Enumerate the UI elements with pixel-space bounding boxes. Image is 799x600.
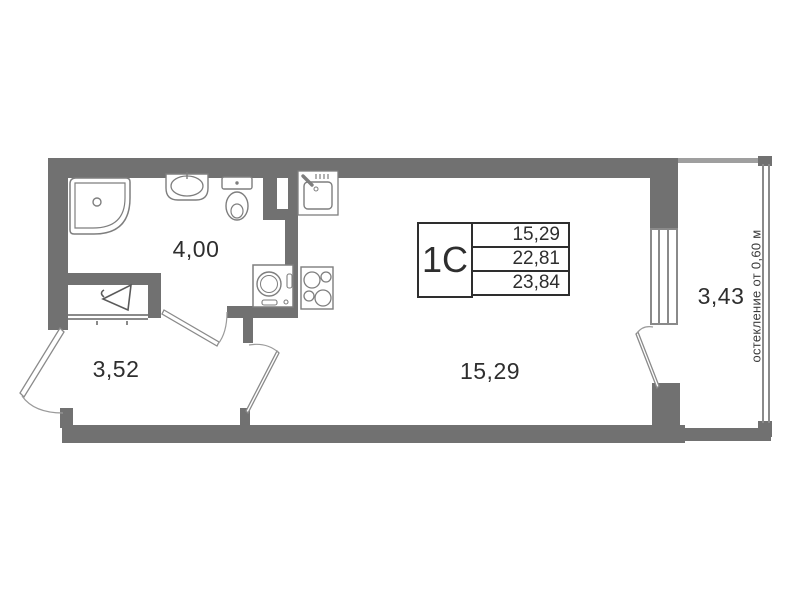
- wall-window-pier-top: [650, 178, 678, 228]
- glazing-note-label: остекление от 0,60 м: [749, 224, 765, 369]
- stove-icon: [300, 266, 334, 310]
- wardrobe-hanger-icon: [98, 282, 136, 314]
- unit-area-rows: 15,29 22,81 23,84: [471, 222, 570, 298]
- toilet-icon: [220, 175, 254, 225]
- closet-sliding-door-icon: [68, 314, 148, 320]
- kitchen-sink-icon: [297, 170, 339, 216]
- window-icon: [650, 228, 678, 325]
- wall-balcony-top-line: [678, 158, 758, 163]
- bathroom-door-icon: [158, 303, 232, 349]
- wall-balcony-corner-bottom: [758, 421, 772, 437]
- wall-left: [48, 158, 68, 330]
- unit-type-label: 1С: [417, 222, 473, 298]
- washbasin-icon: [164, 172, 210, 202]
- shower-icon: [68, 176, 134, 240]
- entrance-door-icon: [14, 324, 70, 418]
- unit-area-total: 22,81: [471, 246, 570, 272]
- unit-info-card: 1С 15,29 22,81 23,84: [417, 222, 570, 298]
- living-room-door-icon: [238, 338, 286, 416]
- unit-area-total-with-balcony: 23,84: [471, 270, 570, 296]
- wall-duct-bottom: [263, 209, 298, 220]
- washing-machine-icon: [252, 264, 294, 308]
- hallway-area-label: 3,52: [76, 356, 156, 383]
- floor-plan-canvas: 4,00 3,52 15,29 3,43 остекление от 0,60 …: [0, 0, 799, 600]
- wall-top: [48, 158, 678, 178]
- balcony-door-icon: [628, 318, 666, 392]
- unit-area-living: 15,29: [471, 222, 570, 248]
- living-area-label: 15,29: [440, 358, 540, 385]
- wall-bottom: [62, 425, 685, 443]
- wall-duct-stub: [263, 178, 277, 209]
- bathroom-area-label: 4,00: [156, 236, 236, 263]
